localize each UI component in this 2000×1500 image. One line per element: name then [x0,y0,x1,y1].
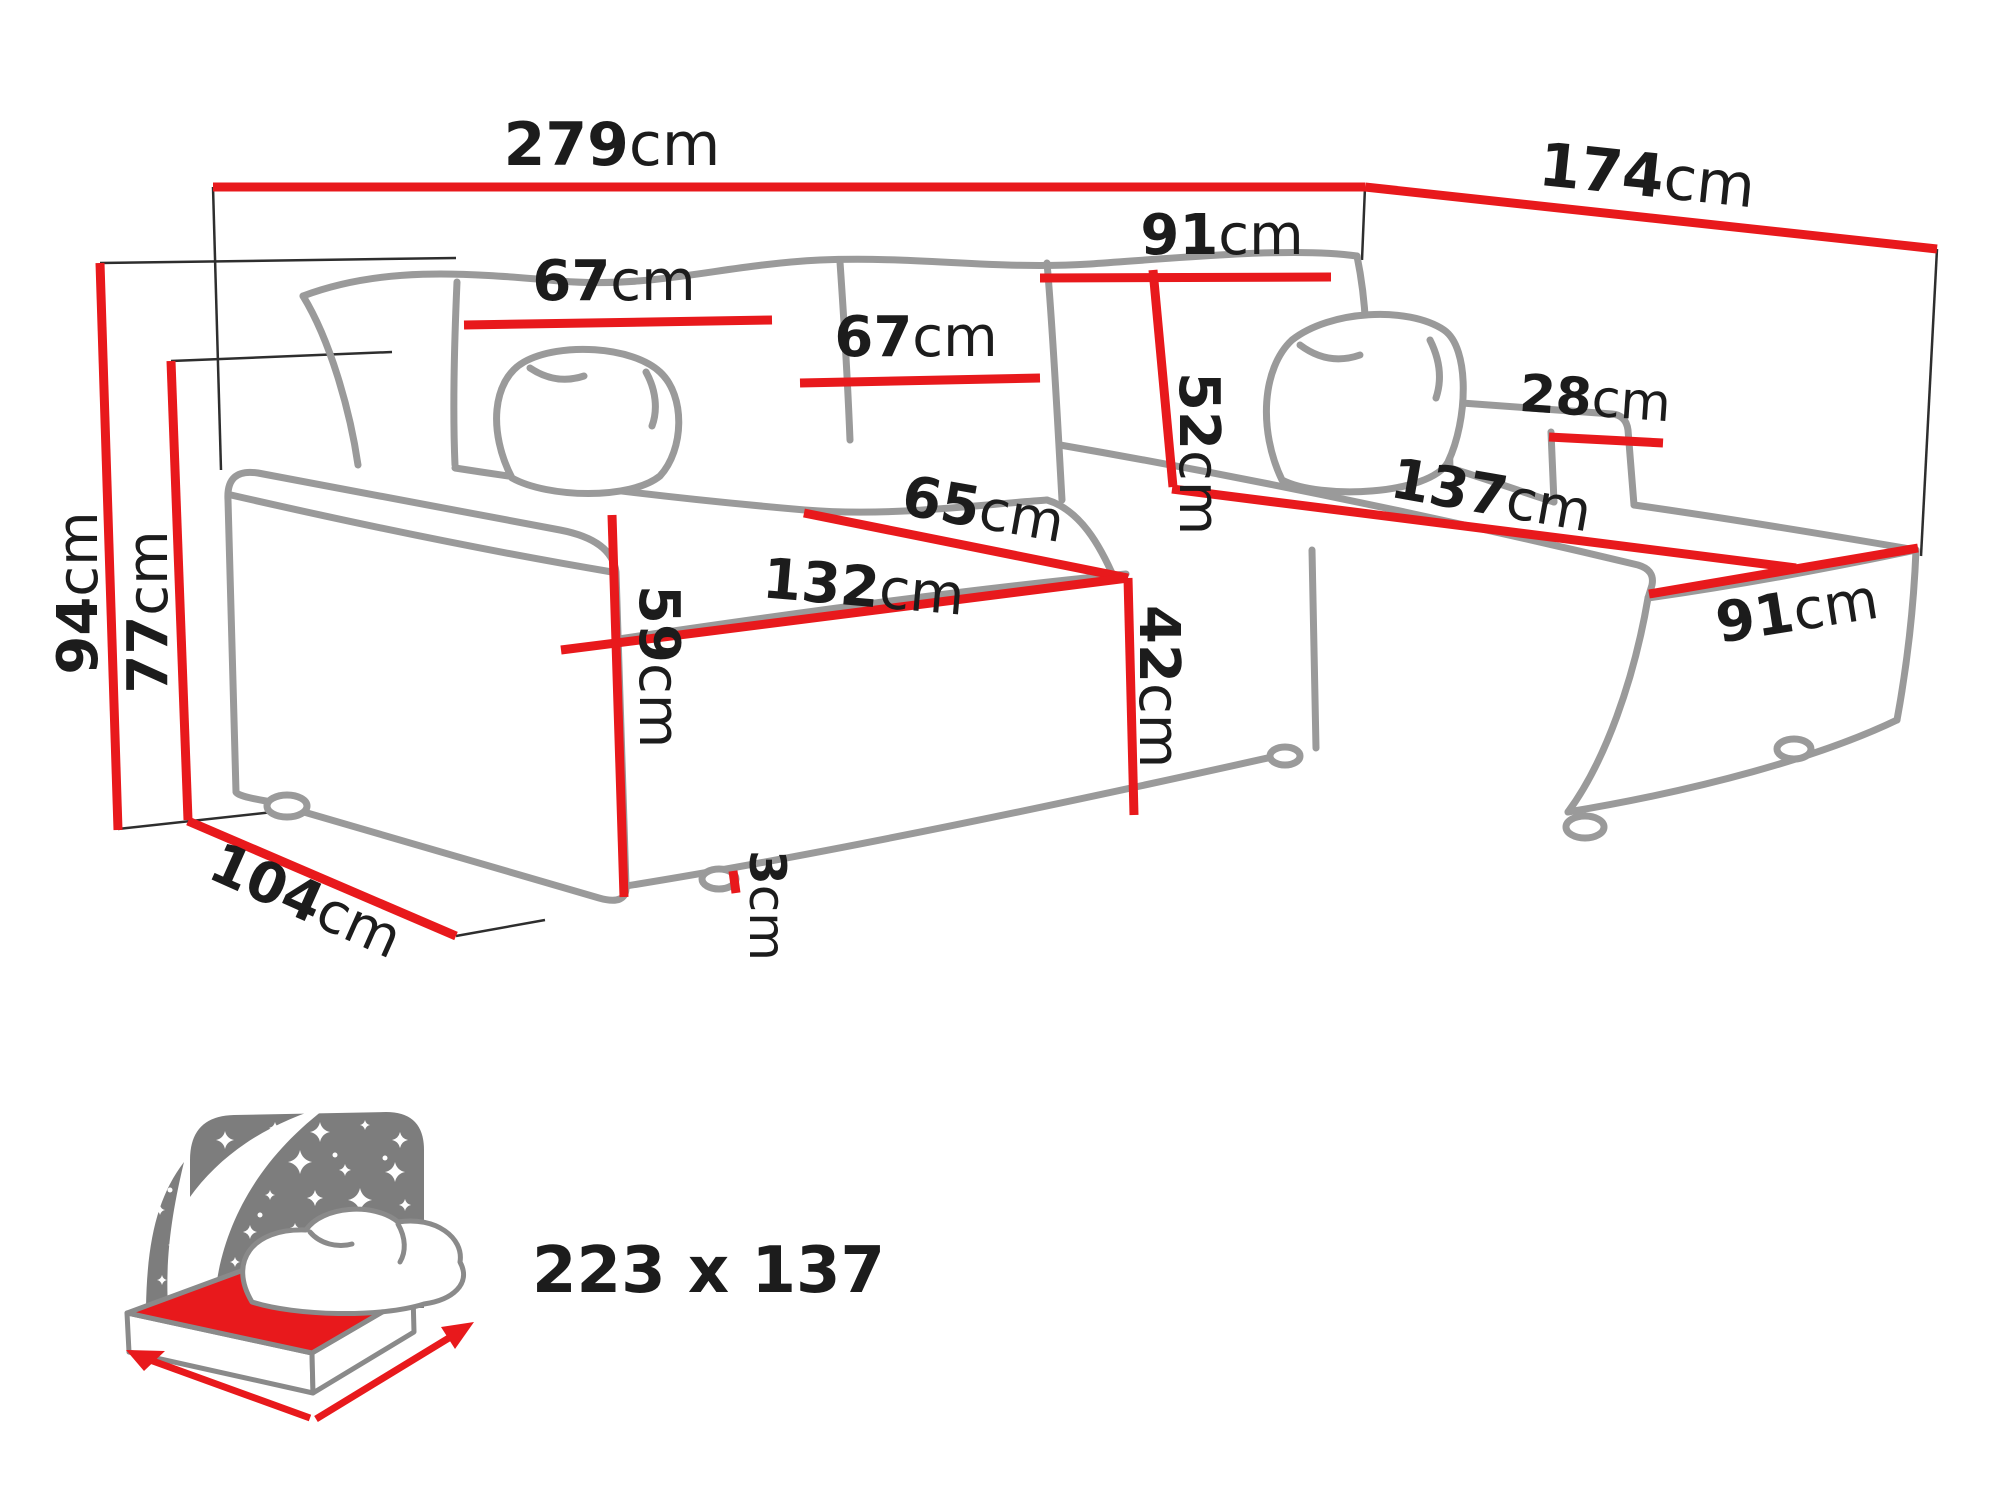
seat-front-bottom-edge [626,753,1290,886]
dim-right-arm-width-line [1549,437,1663,443]
dim-back-cushion-left-line [464,320,772,325]
chaise-front-right-edge [1897,550,1916,720]
sofa-foot [1270,747,1300,765]
chaise-right-edge [1634,505,1916,550]
sleeping-function-icon: 223 x 137 [126,1105,885,1419]
dim-corner-backrest-line [1040,277,1331,278]
dim-seat-height-label: 42cm [1126,605,1191,768]
dim-arm-front-height-label: 59cm [626,585,691,748]
sofa-dimension-diagram: 279cm 174cm 94cm 77cm 67cm 67cm 91cm 52c… [0,0,2000,1500]
sofa-foot [267,795,307,817]
chaise-bottom-edge [1568,720,1897,812]
chaise-front-left-edge [1568,598,1648,812]
dim-base-depth-label: 104cm [200,830,411,972]
sofa-sketch [228,252,1916,900]
dim-corner-backrest-label: 91cm [1140,203,1303,268]
dim-seat-depth-label: 65cm [897,464,1069,556]
dim-total-height-label: 94cm [46,511,111,674]
dim-leg-height-label: 3cm [738,850,796,961]
dim-leg-height-line [733,871,736,893]
dim-backrest-height-label: 52cm [1166,372,1231,535]
sofa-foot [1566,816,1604,838]
dim-armrest-height-label: 77cm [116,530,181,693]
sleeping-area-label: 223 x 137 [532,1234,885,1308]
seat-corner-seam [1312,550,1316,748]
dim-right-arm-width-label: 28cm [1517,364,1672,434]
dim-back-cushion-left-label: 67cm [532,249,695,314]
dim-back-cushion-mid-line [800,378,1040,383]
back-cushion-divider-2 [1047,263,1062,500]
dim-total-width-label: 279cm [504,110,721,180]
back-cushion-left-edge [454,282,457,465]
backrest-left-edge [303,296,358,465]
sofa-foot [1777,739,1811,759]
dim-back-cushion-mid-label: 67cm [834,305,997,370]
